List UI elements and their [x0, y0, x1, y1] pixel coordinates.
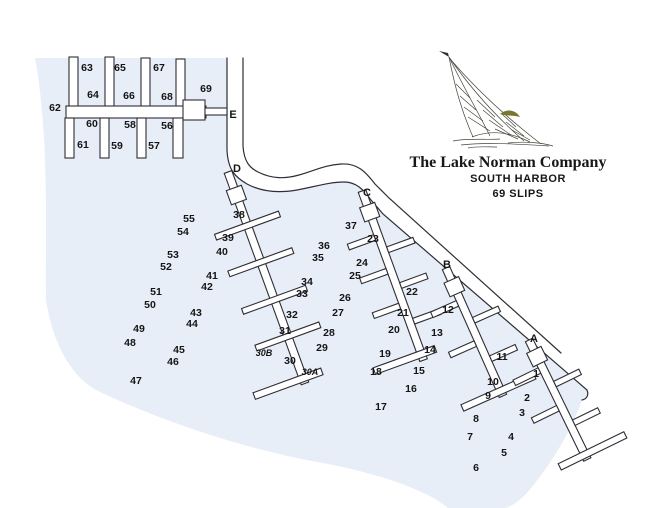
slip-label-17: 17 — [375, 401, 387, 413]
waterline-strokes — [453, 139, 553, 148]
dock-E-pier — [173, 118, 183, 158]
slip-label-51: 51 — [150, 286, 162, 298]
slip-label-48: 48 — [124, 337, 136, 349]
logo: The Lake Norman Company SOUTH HARBOR 69 … — [410, 51, 607, 200]
slip-label-33: 33 — [296, 288, 308, 300]
slip-label-59: 59 — [111, 140, 123, 152]
slip-label-16: 16 — [405, 383, 417, 395]
slip-label-23: 23 — [367, 233, 379, 245]
slip-label-53: 53 — [167, 249, 179, 261]
slip-label-55: 55 — [183, 213, 195, 225]
slip-label-37: 37 — [345, 220, 357, 232]
dock-E-pier — [137, 118, 146, 158]
slip-label-13: 13 — [431, 327, 443, 339]
dock-E-pier — [141, 58, 150, 108]
slip-label-30A: 30A — [302, 367, 319, 377]
slip-label-12: 12 — [442, 304, 454, 316]
slip-count: 69 SLIPS — [492, 188, 543, 200]
slip-label-20: 20 — [388, 324, 400, 336]
slip-label-1: 1 — [533, 368, 539, 380]
slip-label-26: 26 — [339, 292, 351, 304]
slip-label-31: 31 — [279, 325, 291, 337]
slip-label-14: 14 — [424, 344, 436, 356]
slip-label-36: 36 — [318, 240, 330, 252]
dock-E-pier — [100, 118, 109, 158]
slip-label-64: 64 — [87, 89, 99, 101]
slip-label-49: 49 — [133, 323, 145, 335]
slip-label-32: 32 — [286, 309, 298, 321]
slip-label-52: 52 — [160, 261, 172, 273]
slip-label-66: 66 — [123, 90, 135, 102]
dock-E-pier — [183, 100, 205, 120]
slip-label-56: 56 — [161, 120, 173, 132]
slip-label-2: 2 — [524, 392, 530, 404]
slip-label-54: 54 — [177, 226, 189, 238]
slip-label-38: 38 — [233, 209, 245, 221]
dock-letter-A: A — [530, 333, 538, 345]
slip-label-18: 18 — [370, 366, 382, 378]
slip-label-27: 27 — [332, 307, 344, 319]
slip-label-11: 11 — [496, 351, 507, 363]
company-name: The Lake Norman Company — [410, 154, 607, 171]
slip-label-6: 6 — [473, 462, 479, 474]
slip-label-3: 3 — [519, 407, 525, 419]
slip-label-58: 58 — [124, 119, 136, 131]
dock-A-pier — [558, 432, 627, 470]
dock-letter-C: C — [363, 187, 371, 199]
slip-label-9: 9 — [485, 390, 491, 402]
slip-label-25: 25 — [349, 270, 361, 282]
slip-label-4: 4 — [508, 431, 514, 443]
slip-label-57: 57 — [148, 140, 160, 152]
slip-label-10: 10 — [487, 376, 499, 388]
slip-label-42: 42 — [201, 281, 213, 293]
slip-label-63: 63 — [81, 62, 93, 74]
slip-label-45: 45 — [173, 344, 185, 356]
slip-label-60: 60 — [86, 118, 98, 130]
slip-label-22: 22 — [406, 286, 418, 298]
dock-E-pier — [69, 57, 78, 108]
hull-accent — [500, 110, 520, 117]
slip-label-68: 68 — [161, 91, 173, 103]
dock-E-pier — [105, 57, 114, 108]
slip-label-50: 50 — [144, 299, 156, 311]
slip-label-40: 40 — [216, 246, 228, 258]
slip-label-44: 44 — [186, 318, 198, 330]
slip-label-61: 61 — [77, 139, 89, 151]
slip-label-5: 5 — [501, 447, 507, 459]
slip-label-7: 7 — [467, 431, 473, 443]
slip-label-69: 69 — [200, 83, 212, 95]
dock-letter-E: E — [229, 109, 236, 121]
slip-label-67: 67 — [153, 62, 165, 74]
slip-label-21: 21 — [397, 307, 409, 319]
slip-label-62: 62 — [49, 102, 61, 114]
slip-label-65: 65 — [114, 62, 126, 74]
pennant-flag-icon — [439, 51, 449, 57]
slip-label-30B: 30B — [256, 348, 273, 358]
slip-label-46: 46 — [167, 356, 179, 368]
harbor-map-page: 6263646566676869606158595657555453525150… — [0, 0, 648, 508]
dock-E-pier — [65, 118, 74, 158]
dock-letter-B: B — [443, 259, 451, 271]
harbor-name: SOUTH HARBOR — [470, 173, 566, 185]
slip-label-35: 35 — [312, 252, 324, 264]
slip-label-29: 29 — [316, 342, 328, 354]
slip-label-24: 24 — [356, 257, 368, 269]
map-layer: 6263646566676869606158595657555453525150… — [35, 57, 628, 508]
slip-label-19: 19 — [379, 348, 391, 360]
slip-label-39: 39 — [222, 232, 234, 244]
slip-label-30: 30 — [284, 355, 296, 367]
sailboat-icon — [439, 51, 553, 148]
slip-label-28: 28 — [323, 327, 335, 339]
slip-label-34: 34 — [301, 276, 313, 288]
dock-letter-D: D — [233, 163, 241, 175]
slip-label-15: 15 — [413, 365, 425, 377]
dock-E-pier — [205, 108, 227, 115]
slip-label-47: 47 — [130, 375, 142, 387]
harbor-map: 6263646566676869606158595657555453525150… — [0, 0, 648, 508]
slip-label-8: 8 — [473, 413, 479, 425]
